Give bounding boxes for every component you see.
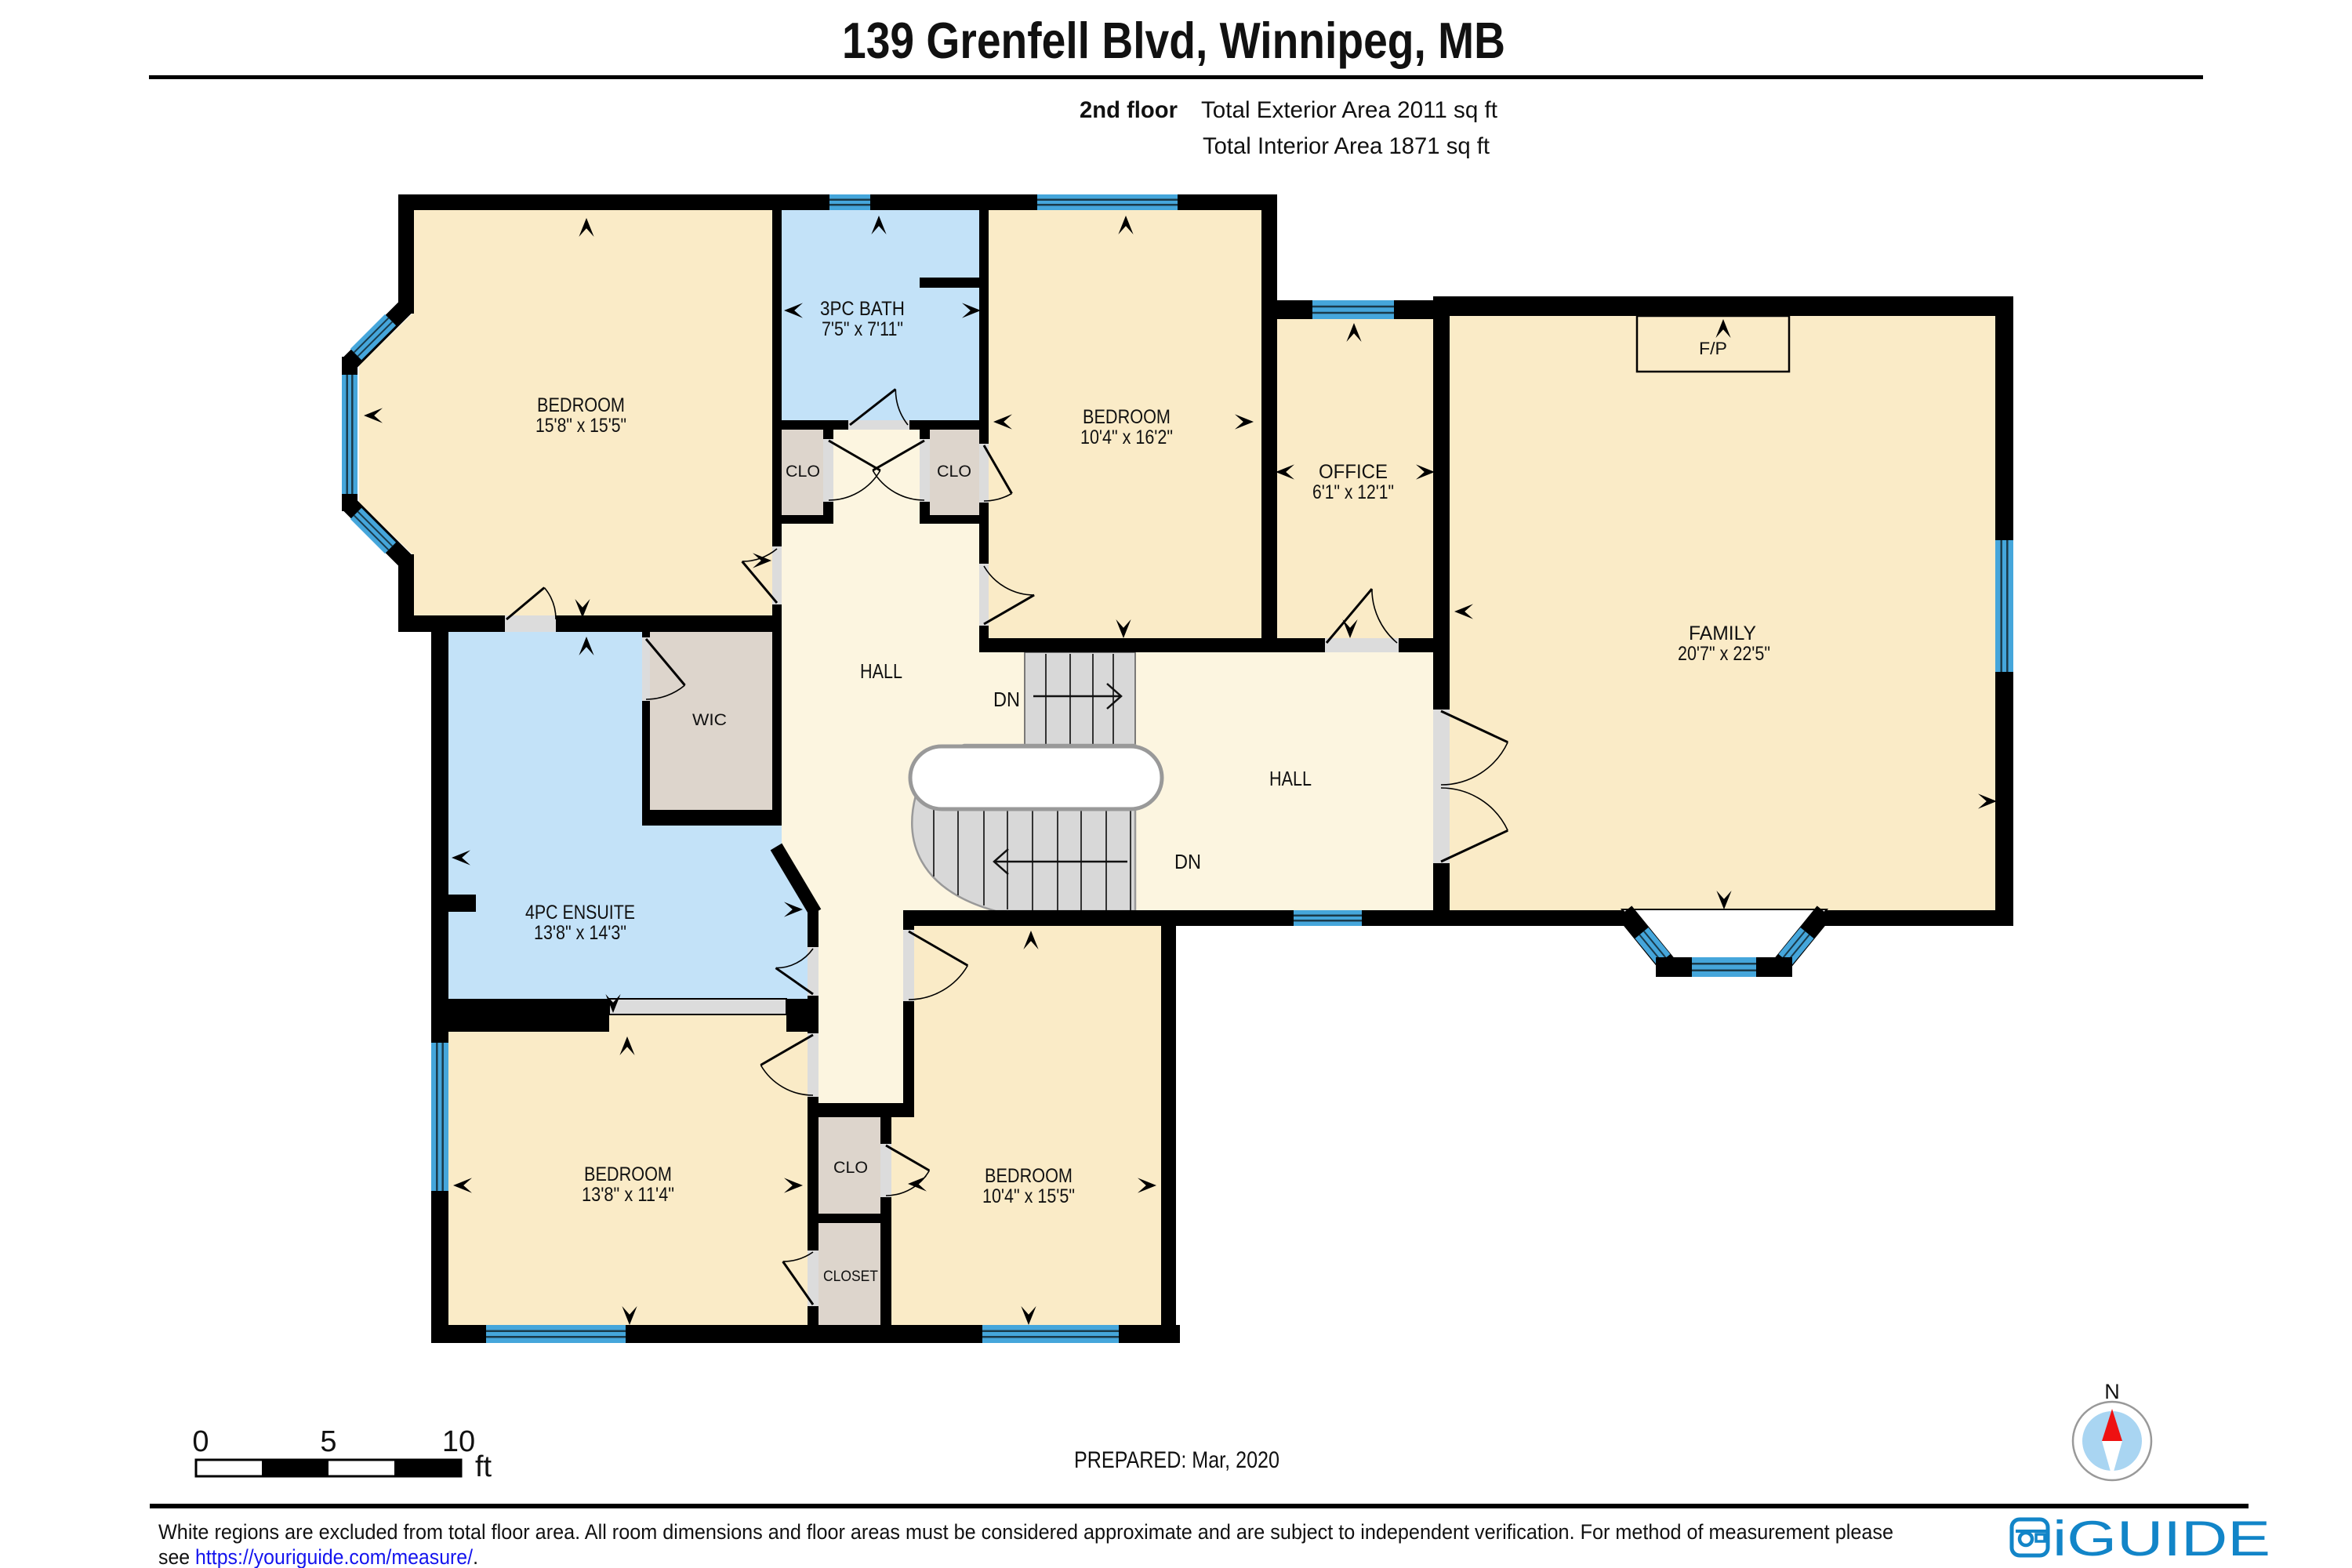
svg-text:BEDROOM: BEDROOM bbox=[584, 1163, 672, 1185]
svg-text:ft: ft bbox=[475, 1450, 492, 1483]
svg-text:WIC: WIC bbox=[692, 711, 727, 729]
svg-text:3PC BATH: 3PC BATH bbox=[820, 298, 905, 320]
svg-text:CLO: CLO bbox=[786, 463, 820, 481]
svg-text:DN: DN bbox=[993, 688, 1020, 711]
svg-text:13'8" x 11'4": 13'8" x 11'4" bbox=[582, 1184, 674, 1206]
svg-text:OFFICE: OFFICE bbox=[1319, 461, 1388, 483]
svg-text:10'4" x 15'5": 10'4" x 15'5" bbox=[982, 1185, 1075, 1207]
svg-text:N: N bbox=[2104, 1380, 2120, 1403]
svg-text:0: 0 bbox=[192, 1425, 209, 1458]
svg-text:White regions are excluded fro: White regions are excluded from total fl… bbox=[158, 1520, 1893, 1544]
svg-text:Total Interior Area 1871 sq ft: Total Interior Area 1871 sq ft bbox=[1203, 133, 1490, 159]
svg-text:HALL: HALL bbox=[1269, 767, 1312, 790]
svg-text:Total Exterior Area 2011 sq ft: Total Exterior Area 2011 sq ft bbox=[1201, 97, 1498, 123]
svg-text:HALL: HALL bbox=[860, 659, 902, 683]
svg-text:DN: DN bbox=[1174, 850, 1201, 873]
svg-text:7'5" x 7'11": 7'5" x 7'11" bbox=[822, 318, 903, 340]
svg-text:BEDROOM: BEDROOM bbox=[985, 1165, 1073, 1187]
svg-text:5: 5 bbox=[320, 1425, 336, 1458]
svg-text:PREPARED: Mar, 2020: PREPARED: Mar, 2020 bbox=[1074, 1447, 1279, 1473]
svg-text:FAMILY: FAMILY bbox=[1689, 622, 1756, 644]
svg-text:10'4" x 16'2": 10'4" x 16'2" bbox=[1080, 426, 1173, 448]
svg-text:BEDROOM: BEDROOM bbox=[537, 394, 625, 416]
svg-text:139 Grenfell Blvd, Winnipeg, M: 139 Grenfell Blvd, Winnipeg, MB bbox=[842, 12, 1505, 69]
svg-text:CLOSET: CLOSET bbox=[823, 1269, 878, 1285]
svg-text:CLO: CLO bbox=[833, 1159, 868, 1177]
svg-text:2nd floor: 2nd floor bbox=[1080, 97, 1178, 123]
svg-text:see https://youriguide.com/mea: see https://youriguide.com/measure/. bbox=[158, 1545, 478, 1568]
svg-text:20'7" x 22'5": 20'7" x 22'5" bbox=[1678, 643, 1770, 665]
svg-text:CLO: CLO bbox=[937, 463, 971, 481]
svg-text:15'8" x 15'5": 15'8" x 15'5" bbox=[535, 415, 626, 437]
svg-text:iGUIDE: iGUIDE bbox=[2053, 1512, 2270, 1566]
svg-text:F/P: F/P bbox=[1699, 339, 1727, 358]
svg-text:13'8" x 14'3": 13'8" x 14'3" bbox=[534, 922, 626, 944]
svg-text:BEDROOM: BEDROOM bbox=[1083, 406, 1171, 428]
svg-text:6'1" x 12'1": 6'1" x 12'1" bbox=[1312, 481, 1394, 503]
svg-text:4PC ENSUITE: 4PC ENSUITE bbox=[525, 902, 635, 924]
svg-text:10: 10 bbox=[442, 1425, 475, 1458]
